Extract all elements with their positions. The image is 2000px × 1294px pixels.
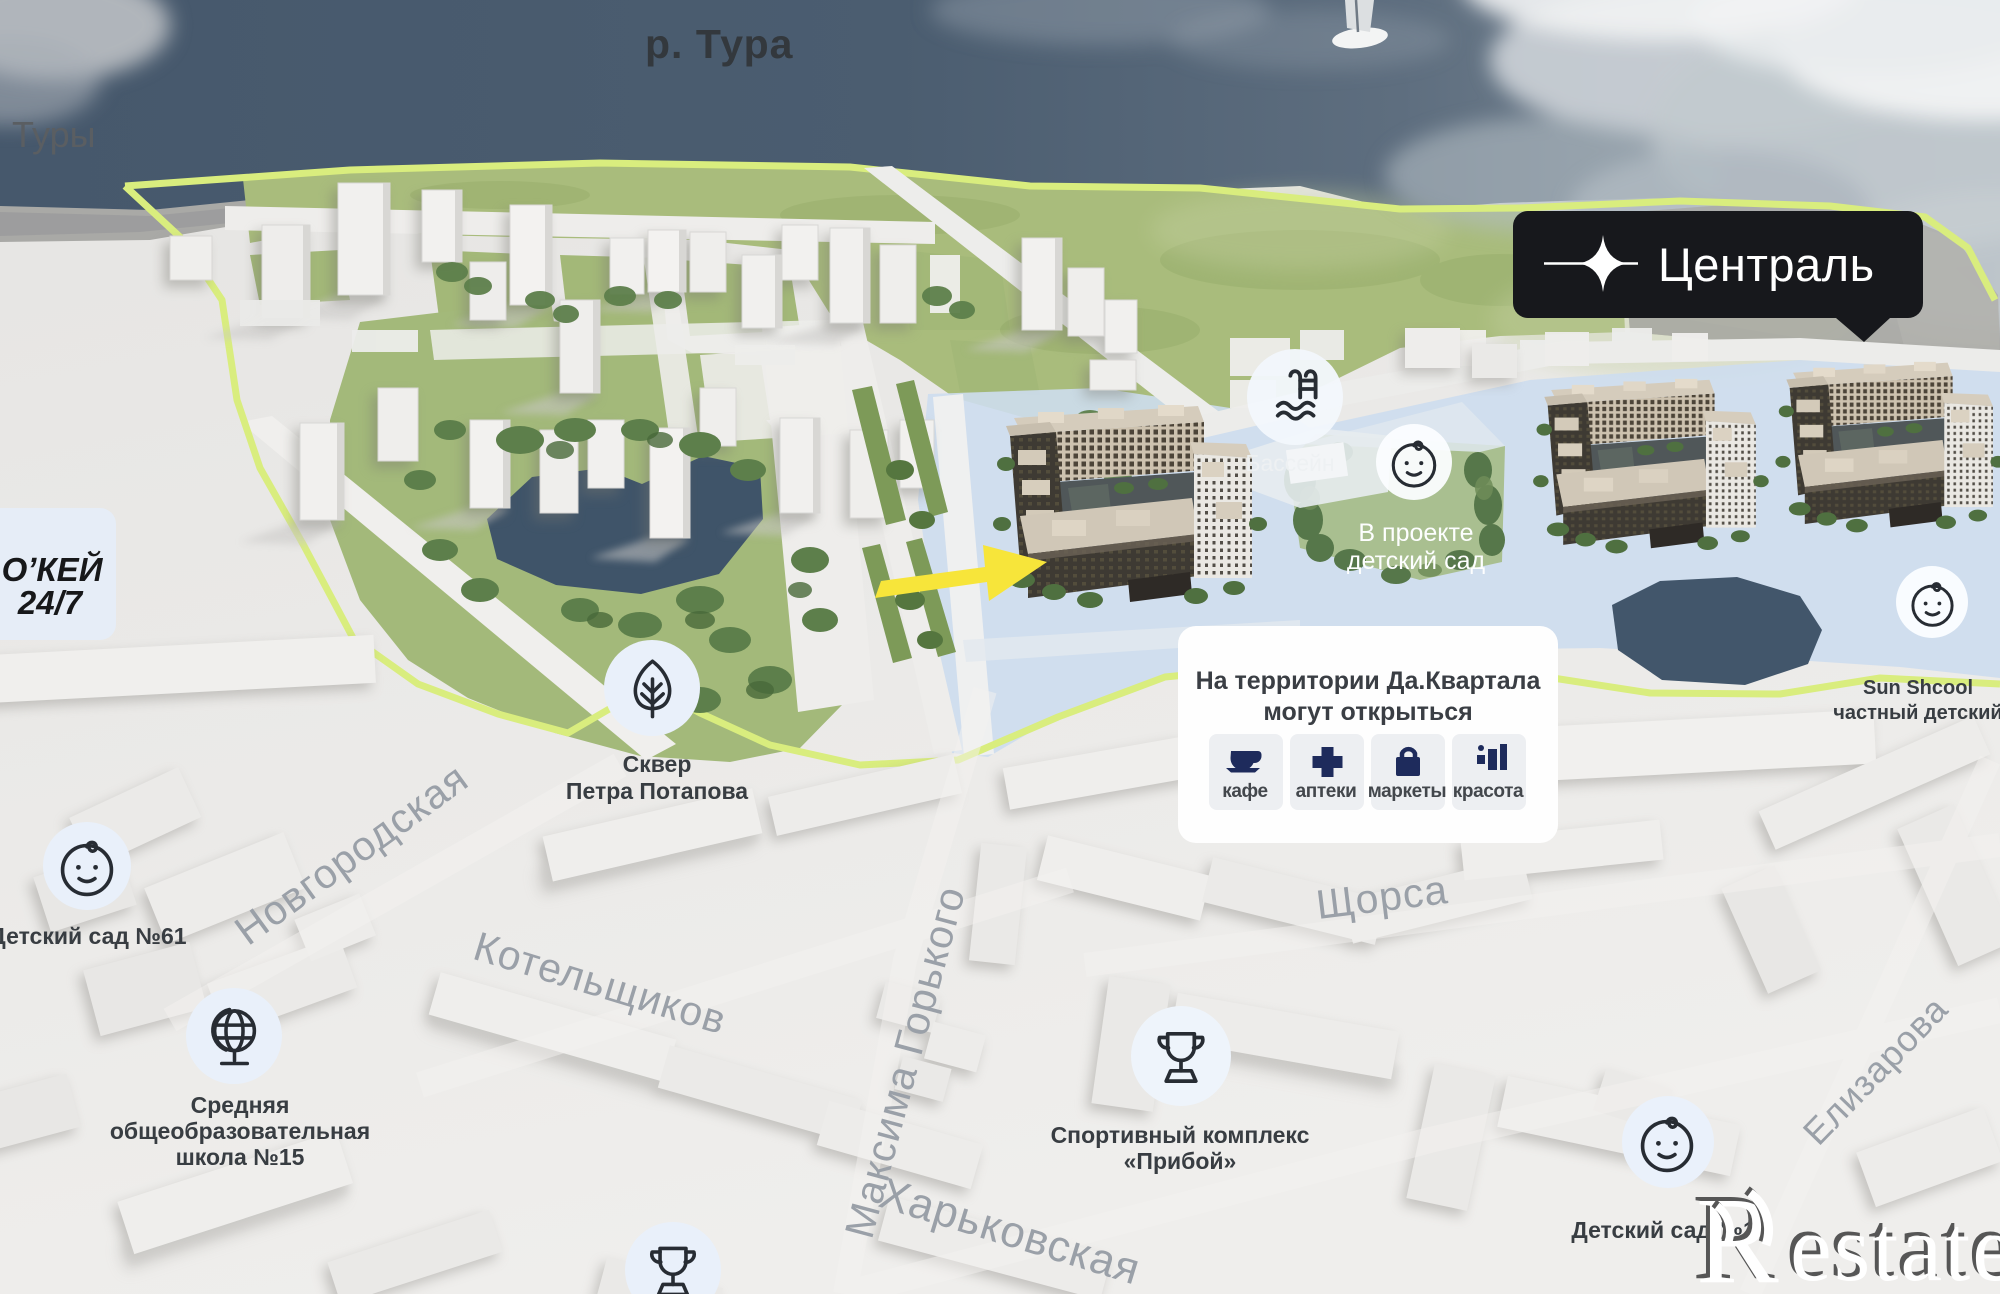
svg-text:На территории Да.Квартала: На территории Да.Квартала bbox=[1196, 667, 1542, 695]
svg-text:школа №15: школа №15 bbox=[176, 1144, 305, 1170]
svg-text:Туры: Туры bbox=[12, 114, 95, 155]
svg-text:красота: красота bbox=[1453, 781, 1524, 802]
svg-text:«Прибой»: «Прибой» bbox=[1124, 1148, 1237, 1174]
svg-text:Сквер: Сквер bbox=[623, 751, 692, 777]
svg-text:общеобразовательная: общеобразовательная bbox=[110, 1118, 370, 1144]
svg-text:частный детский: частный детский bbox=[1833, 702, 2000, 724]
svg-text:аптеки: аптеки bbox=[1296, 781, 1357, 802]
svg-text:В проекте: В проекте bbox=[1358, 519, 1473, 547]
svg-text:кафе: кафе bbox=[1222, 781, 1267, 802]
svg-text:ОʼКЕЙ: ОʼКЕЙ bbox=[2, 550, 104, 588]
svg-text:р. Тура: р. Тура bbox=[645, 21, 794, 67]
svg-text:Бассейн: Бассейн bbox=[1245, 450, 1334, 476]
svg-text:estate: estate bbox=[1790, 1197, 2000, 1294]
svg-text:Средняя: Средняя bbox=[191, 1092, 290, 1118]
svg-text:Детский сад №61: Детский сад №61 bbox=[0, 923, 187, 949]
svg-text:Централь: Централь bbox=[1658, 238, 1875, 291]
svg-text:могут открыться: могут открыться bbox=[1263, 698, 1472, 726]
svg-text:Sun Shcool: Sun Shcool bbox=[1863, 677, 1973, 699]
svg-text:маркеты: маркеты bbox=[1368, 781, 1447, 802]
svg-text:Спортивный комплекс: Спортивный комплекс bbox=[1051, 1122, 1310, 1148]
svg-text:Петра Потапова: Петра Потапова bbox=[566, 778, 748, 804]
svg-text:детский сад: детский сад bbox=[1347, 547, 1486, 575]
svg-text:24/7: 24/7 bbox=[17, 584, 84, 621]
